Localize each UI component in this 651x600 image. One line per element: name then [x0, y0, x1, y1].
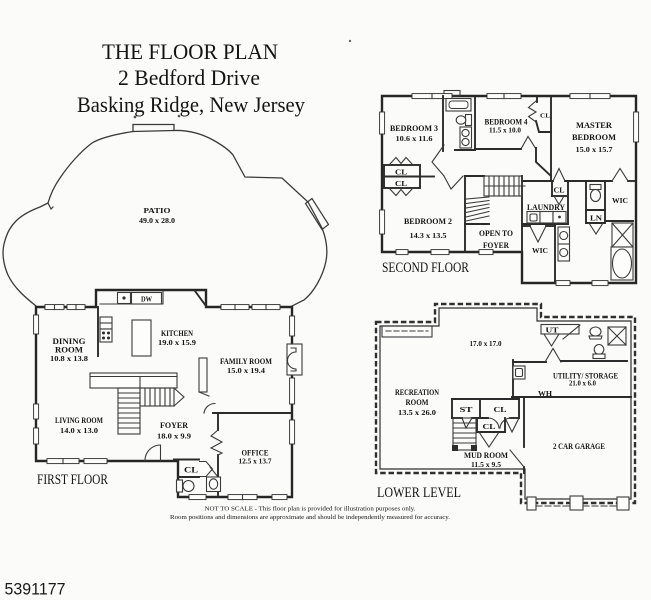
svg-text:BEDROOM 2: BEDROOM 2 [404, 217, 452, 226]
svg-text:MASTER: MASTER [576, 121, 612, 130]
svg-text:WH: WH [538, 389, 552, 398]
svg-text:17.0 x 17.0: 17.0 x 17.0 [470, 339, 502, 348]
svg-text:NOT TO SCALE - This floor plan: NOT TO SCALE - This floor plan is provid… [205, 506, 416, 513]
svg-text:BEDROOM 3: BEDROOM 3 [390, 124, 438, 133]
svg-text:Room positions and dimensions: Room positions and dimensions are approx… [170, 514, 451, 521]
svg-text:CL: CL [554, 187, 565, 195]
svg-text:WIC: WIC [532, 246, 548, 255]
svg-text:PATIO: PATIO [144, 206, 171, 215]
svg-text:FOYER: FOYER [160, 421, 188, 430]
svg-text:18.0 x 9.9: 18.0 x 9.9 [157, 432, 191, 441]
svg-text:MUD ROOM: MUD ROOM [464, 451, 508, 460]
svg-text:14.3 x 13.5: 14.3 x 13.5 [410, 231, 447, 240]
svg-text:THE FLOOR PLAN: THE FLOOR PLAN [102, 39, 278, 64]
svg-text:49.0 x 28.0: 49.0 x 28.0 [139, 216, 175, 225]
svg-text:FOYER: FOYER [483, 241, 509, 250]
svg-text:ROOM: ROOM [406, 398, 429, 407]
svg-text:BEDROOM: BEDROOM [572, 133, 616, 142]
svg-text:WIC: WIC [612, 196, 628, 205]
svg-text:CL: CL [483, 422, 496, 431]
svg-text:11.5 x 9.5: 11.5 x 9.5 [471, 460, 501, 469]
svg-text:15.0 x 19.4: 15.0 x 19.4 [227, 366, 265, 375]
svg-text:CL: CL [184, 466, 198, 475]
svg-text:RECREATION: RECREATION [395, 388, 439, 397]
svg-text:2 Bedford Drive: 2 Bedford Drive [118, 65, 260, 90]
svg-text:FAMILY ROOM: FAMILY ROOM [220, 357, 272, 366]
svg-text:Basking Ridge, New Jersey: Basking Ridge, New Jersey [77, 92, 305, 117]
svg-text:KITCHEN: KITCHEN [161, 329, 193, 338]
svg-text:LOWER LEVEL: LOWER LEVEL [377, 485, 461, 501]
svg-text:UT: UT [546, 327, 559, 335]
svg-text:19.0 x 15.9: 19.0 x 15.9 [158, 338, 196, 347]
svg-text:14.0 x 13.0: 14.0 x 13.0 [60, 426, 98, 435]
svg-text:2 CAR GARAGE: 2 CAR GARAGE [553, 442, 605, 451]
svg-text:13.5 x 26.0: 13.5 x 26.0 [398, 408, 436, 417]
svg-text:10.6 x 11.6: 10.6 x 11.6 [396, 134, 433, 143]
svg-text:10.8 x 13.8: 10.8 x 13.8 [50, 354, 88, 363]
svg-text:OPEN TO: OPEN TO [479, 229, 513, 238]
svg-text:11.5 x 10.0: 11.5 x 10.0 [489, 126, 521, 135]
svg-text:5391177: 5391177 [5, 581, 66, 599]
svg-text:DW: DW [141, 296, 152, 304]
svg-text:SECOND FLOOR: SECOND FLOOR [382, 260, 469, 276]
svg-text:CL: CL [540, 113, 551, 120]
svg-text:12.5 x 13.7: 12.5 x 13.7 [239, 457, 272, 466]
svg-text:CL: CL [395, 169, 407, 177]
svg-text:LIVING ROOM: LIVING ROOM [55, 416, 103, 425]
svg-text:FIRST FLOOR: FIRST FLOOR [37, 472, 108, 488]
svg-text:ST: ST [460, 405, 473, 414]
svg-text:LN: LN [590, 215, 602, 223]
svg-text:CL: CL [395, 180, 407, 188]
svg-text:15.0 x 15.7: 15.0 x 15.7 [576, 145, 613, 154]
svg-text:CL: CL [494, 405, 507, 414]
svg-text:21.0 x 6.0: 21.0 x 6.0 [569, 379, 596, 388]
